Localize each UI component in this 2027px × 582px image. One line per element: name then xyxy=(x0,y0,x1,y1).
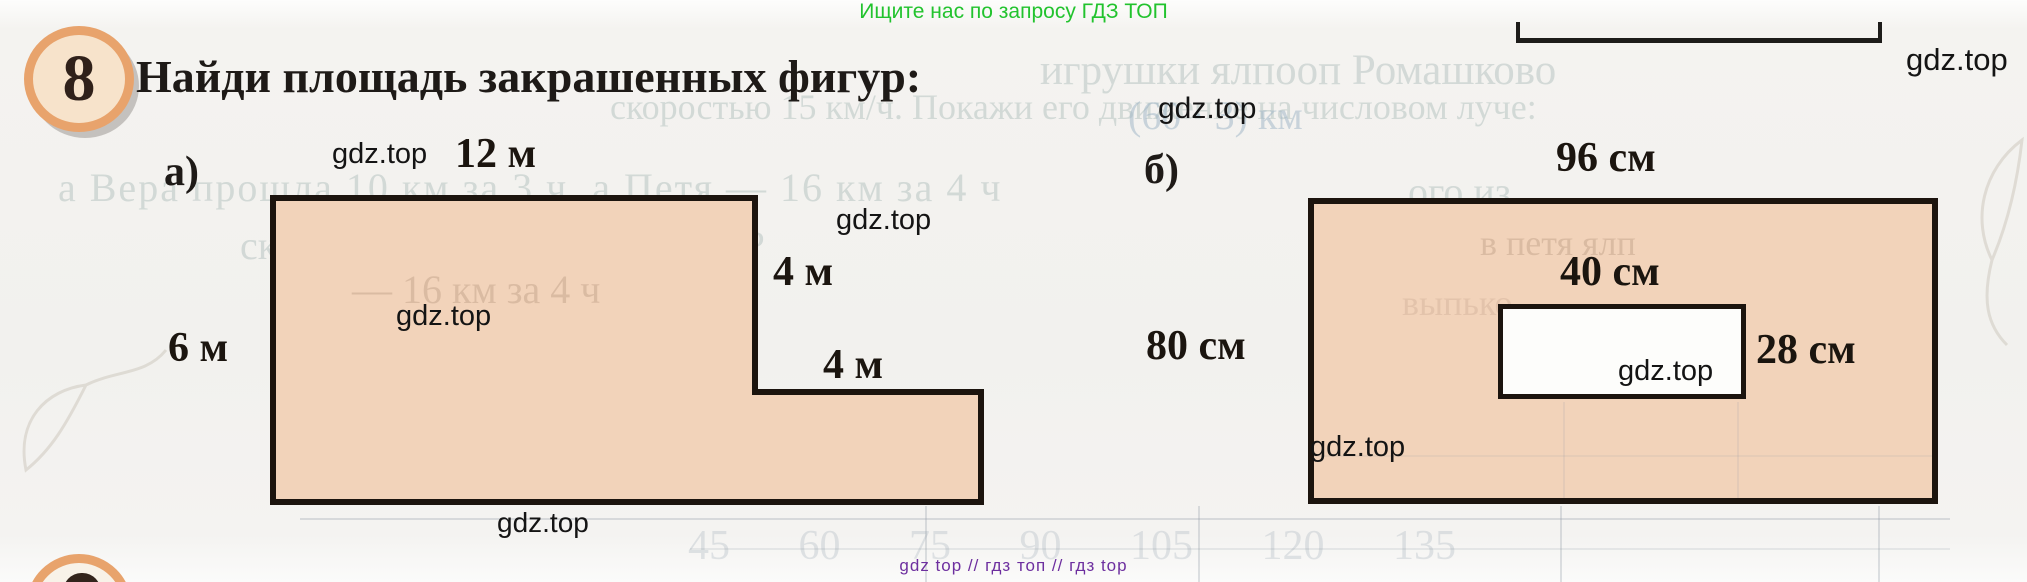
gdz-watermark: gdz.top xyxy=(396,300,491,333)
gdz-watermark: gdz.top xyxy=(1906,42,2008,78)
figure-a-label: а) xyxy=(164,148,199,196)
figure-a-top-dimension: 12 м xyxy=(455,130,536,178)
task-number-badge: 8 xyxy=(24,26,134,132)
figure-b-label: б) xyxy=(1144,146,1179,194)
cutoff-figure-bracket xyxy=(1516,22,1882,43)
faint-gridline-v xyxy=(1563,402,1565,498)
gdz-watermark: gdz.top xyxy=(1618,355,1713,388)
figure-a-left-dimension: 6 м xyxy=(168,324,228,372)
task-title: Найди площадь закрашенных фигур: xyxy=(136,50,921,103)
top-promo-banner: Ищите нас по запросу ГДЗ ТОП xyxy=(0,0,2027,24)
gdz-watermark: gdz.top xyxy=(332,138,427,171)
figure-b-top-dimension: 96 см xyxy=(1556,134,1656,182)
leaf-doodle-icon xyxy=(1952,130,2027,350)
bottom-promo-banner: gdz top // гдз топ // гдз top xyxy=(0,556,2027,576)
figure-b-inner-top-dimension: 40 см xyxy=(1560,248,1660,296)
scanned-textbook-page: игрушки ялпооп Ромашково скоростью 15 км… xyxy=(0,0,2027,582)
gdz-watermark: gdz.top xyxy=(497,507,589,539)
figure-b-inner-right-dimension: 28 см xyxy=(1756,326,1856,374)
gdz-watermark: gdz.top xyxy=(1310,431,1405,464)
figure-b-left-dimension: 80 см xyxy=(1146,322,1246,370)
leaf-doodle-icon xyxy=(6,330,176,480)
figure-a-step-horizontal-dimension: 4 м xyxy=(823,341,883,389)
gdz-watermark: gdz.top xyxy=(836,204,931,237)
bleed-text-in-figure-b2: выпько xyxy=(1402,282,1513,324)
faint-gridline-v xyxy=(1737,402,1739,498)
gdz-watermark: gdz.top xyxy=(1158,92,1256,126)
task-number: 8 xyxy=(63,46,96,112)
faint-gridline-h xyxy=(1314,455,1932,457)
faint-gridline-h xyxy=(690,548,1950,550)
figure-a-step-vertical-dimension: 4 м xyxy=(773,248,833,296)
